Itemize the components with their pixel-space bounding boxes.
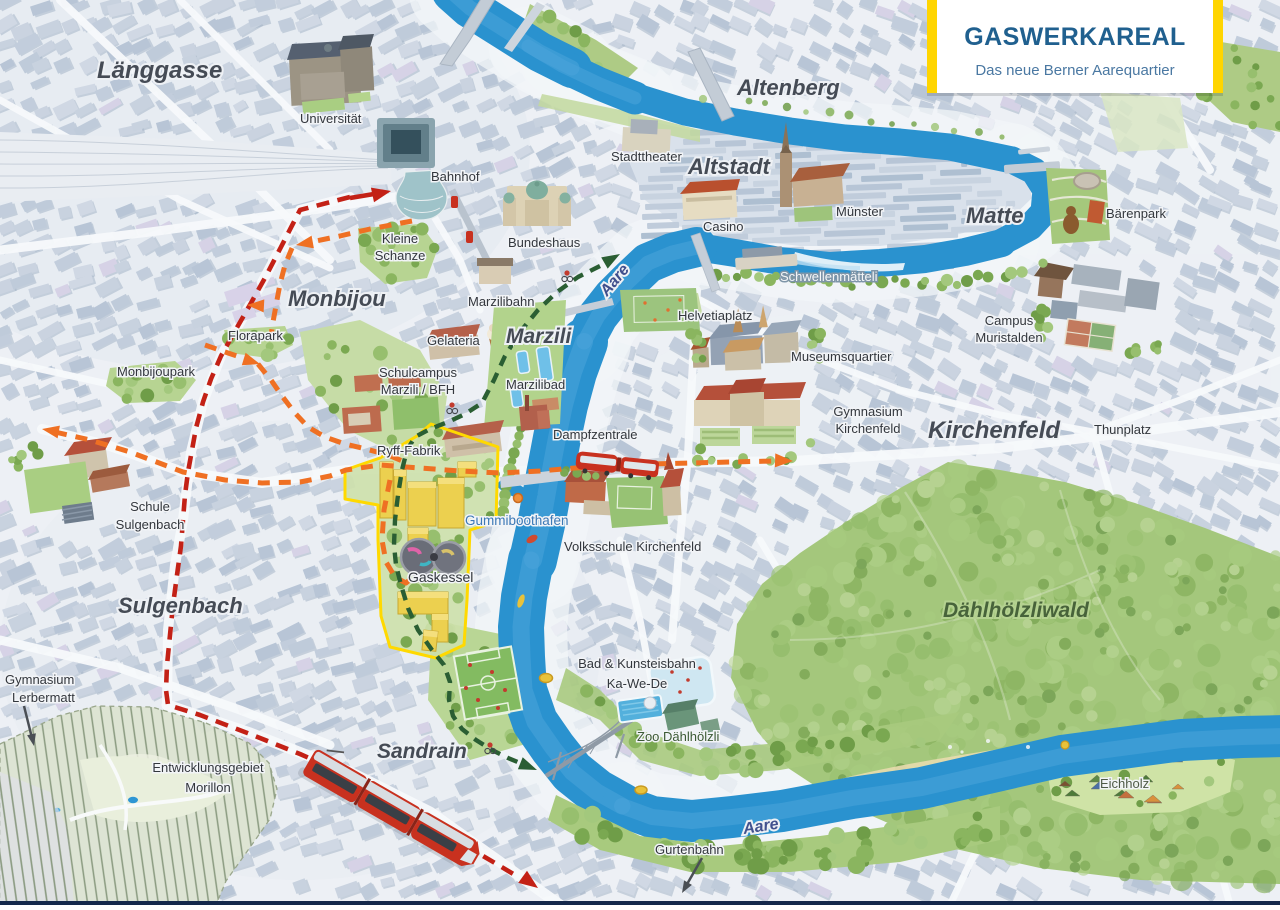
svg-text:Kleine: Kleine: [382, 231, 418, 246]
svg-text:Kirchenfeld: Kirchenfeld: [928, 417, 1061, 444]
svg-text:Eichholz: Eichholz: [1100, 776, 1149, 791]
svg-text:Entwicklungsgebiet: Entwicklungsgebiet: [152, 760, 264, 775]
svg-text:Marzili / BFH: Marzili / BFH: [381, 382, 455, 397]
svg-text:Altstadt: Altstadt: [687, 154, 772, 179]
svg-text:Muristalden: Muristalden: [975, 330, 1042, 345]
svg-text:Zoo Dählhölzli: Zoo Dählhölzli: [637, 729, 719, 744]
svg-text:Sulgenbach: Sulgenbach: [116, 517, 185, 532]
svg-text:Ka-We-De: Ka-We-De: [607, 676, 667, 691]
svg-text:Matte: Matte: [966, 203, 1023, 228]
svg-text:Schulcampus: Schulcampus: [379, 365, 458, 380]
svg-text:Gaskessel: Gaskessel: [408, 569, 473, 585]
svg-text:Volksschule Kirchenfeld: Volksschule Kirchenfeld: [564, 539, 701, 554]
svg-text:Schwellenmätteli: Schwellenmätteli: [780, 269, 878, 284]
svg-text:Stadttheater: Stadttheater: [611, 149, 682, 164]
svg-text:Gurtenbahn: Gurtenbahn: [655, 842, 724, 857]
svg-text:Thunplatz: Thunplatz: [1094, 422, 1151, 437]
svg-text:Kirchenfeld: Kirchenfeld: [835, 421, 900, 436]
svg-text:Schule: Schule: [130, 499, 170, 514]
svg-text:Campus: Campus: [985, 313, 1034, 328]
svg-text:Monbijou: Monbijou: [288, 286, 386, 311]
svg-text:Bahnhof: Bahnhof: [431, 169, 480, 184]
svg-text:Morillon: Morillon: [185, 780, 231, 795]
svg-text:Marzili: Marzili: [506, 325, 573, 348]
svg-text:Ryff-Fabrik: Ryff-Fabrik: [377, 443, 441, 458]
svg-text:Gelateria: Gelateria: [427, 333, 481, 348]
svg-text:Marzilibahn: Marzilibahn: [468, 294, 534, 309]
svg-text:Dampfzentrale: Dampfzentrale: [553, 427, 638, 442]
svg-text:Lerbermatt: Lerbermatt: [12, 690, 75, 705]
svg-text:Sandrain: Sandrain: [377, 740, 467, 763]
svg-text:Gymnasium: Gymnasium: [833, 404, 902, 419]
svg-text:Sulgenbach: Sulgenbach: [118, 593, 243, 618]
svg-text:Universität: Universität: [300, 111, 362, 126]
svg-text:Museumsquartier: Museumsquartier: [791, 349, 892, 364]
svg-text:Bad & Kunsteisbahn: Bad & Kunsteisbahn: [578, 656, 696, 671]
svg-text:Casino: Casino: [703, 219, 743, 234]
svg-text:Altenberg: Altenberg: [736, 75, 840, 100]
svg-text:Schanze: Schanze: [375, 248, 426, 263]
svg-text:Florapark: Florapark: [228, 328, 283, 343]
svg-text:GASWERKAREAL: GASWERKAREAL: [964, 23, 1185, 51]
svg-text:Gymnasium: Gymnasium: [5, 672, 74, 687]
svg-text:Münster: Münster: [836, 204, 884, 219]
svg-text:Dählhölzliwald: Dählhölzliwald: [943, 599, 1090, 622]
svg-text:Bärenpark: Bärenpark: [1106, 206, 1166, 221]
svg-text:Das neue Berner Aarequartier: Das neue Berner Aarequartier: [975, 62, 1174, 79]
svg-text:Helvetiaplatz: Helvetiaplatz: [678, 308, 752, 323]
svg-text:Monbijoupark: Monbijoupark: [117, 364, 196, 379]
svg-text:Marzilibad: Marzilibad: [506, 377, 565, 392]
svg-text:Gummiboothafen: Gummiboothafen: [465, 513, 569, 528]
svg-text:Bundeshaus: Bundeshaus: [508, 235, 581, 250]
svg-text:Länggasse: Länggasse: [97, 57, 222, 84]
